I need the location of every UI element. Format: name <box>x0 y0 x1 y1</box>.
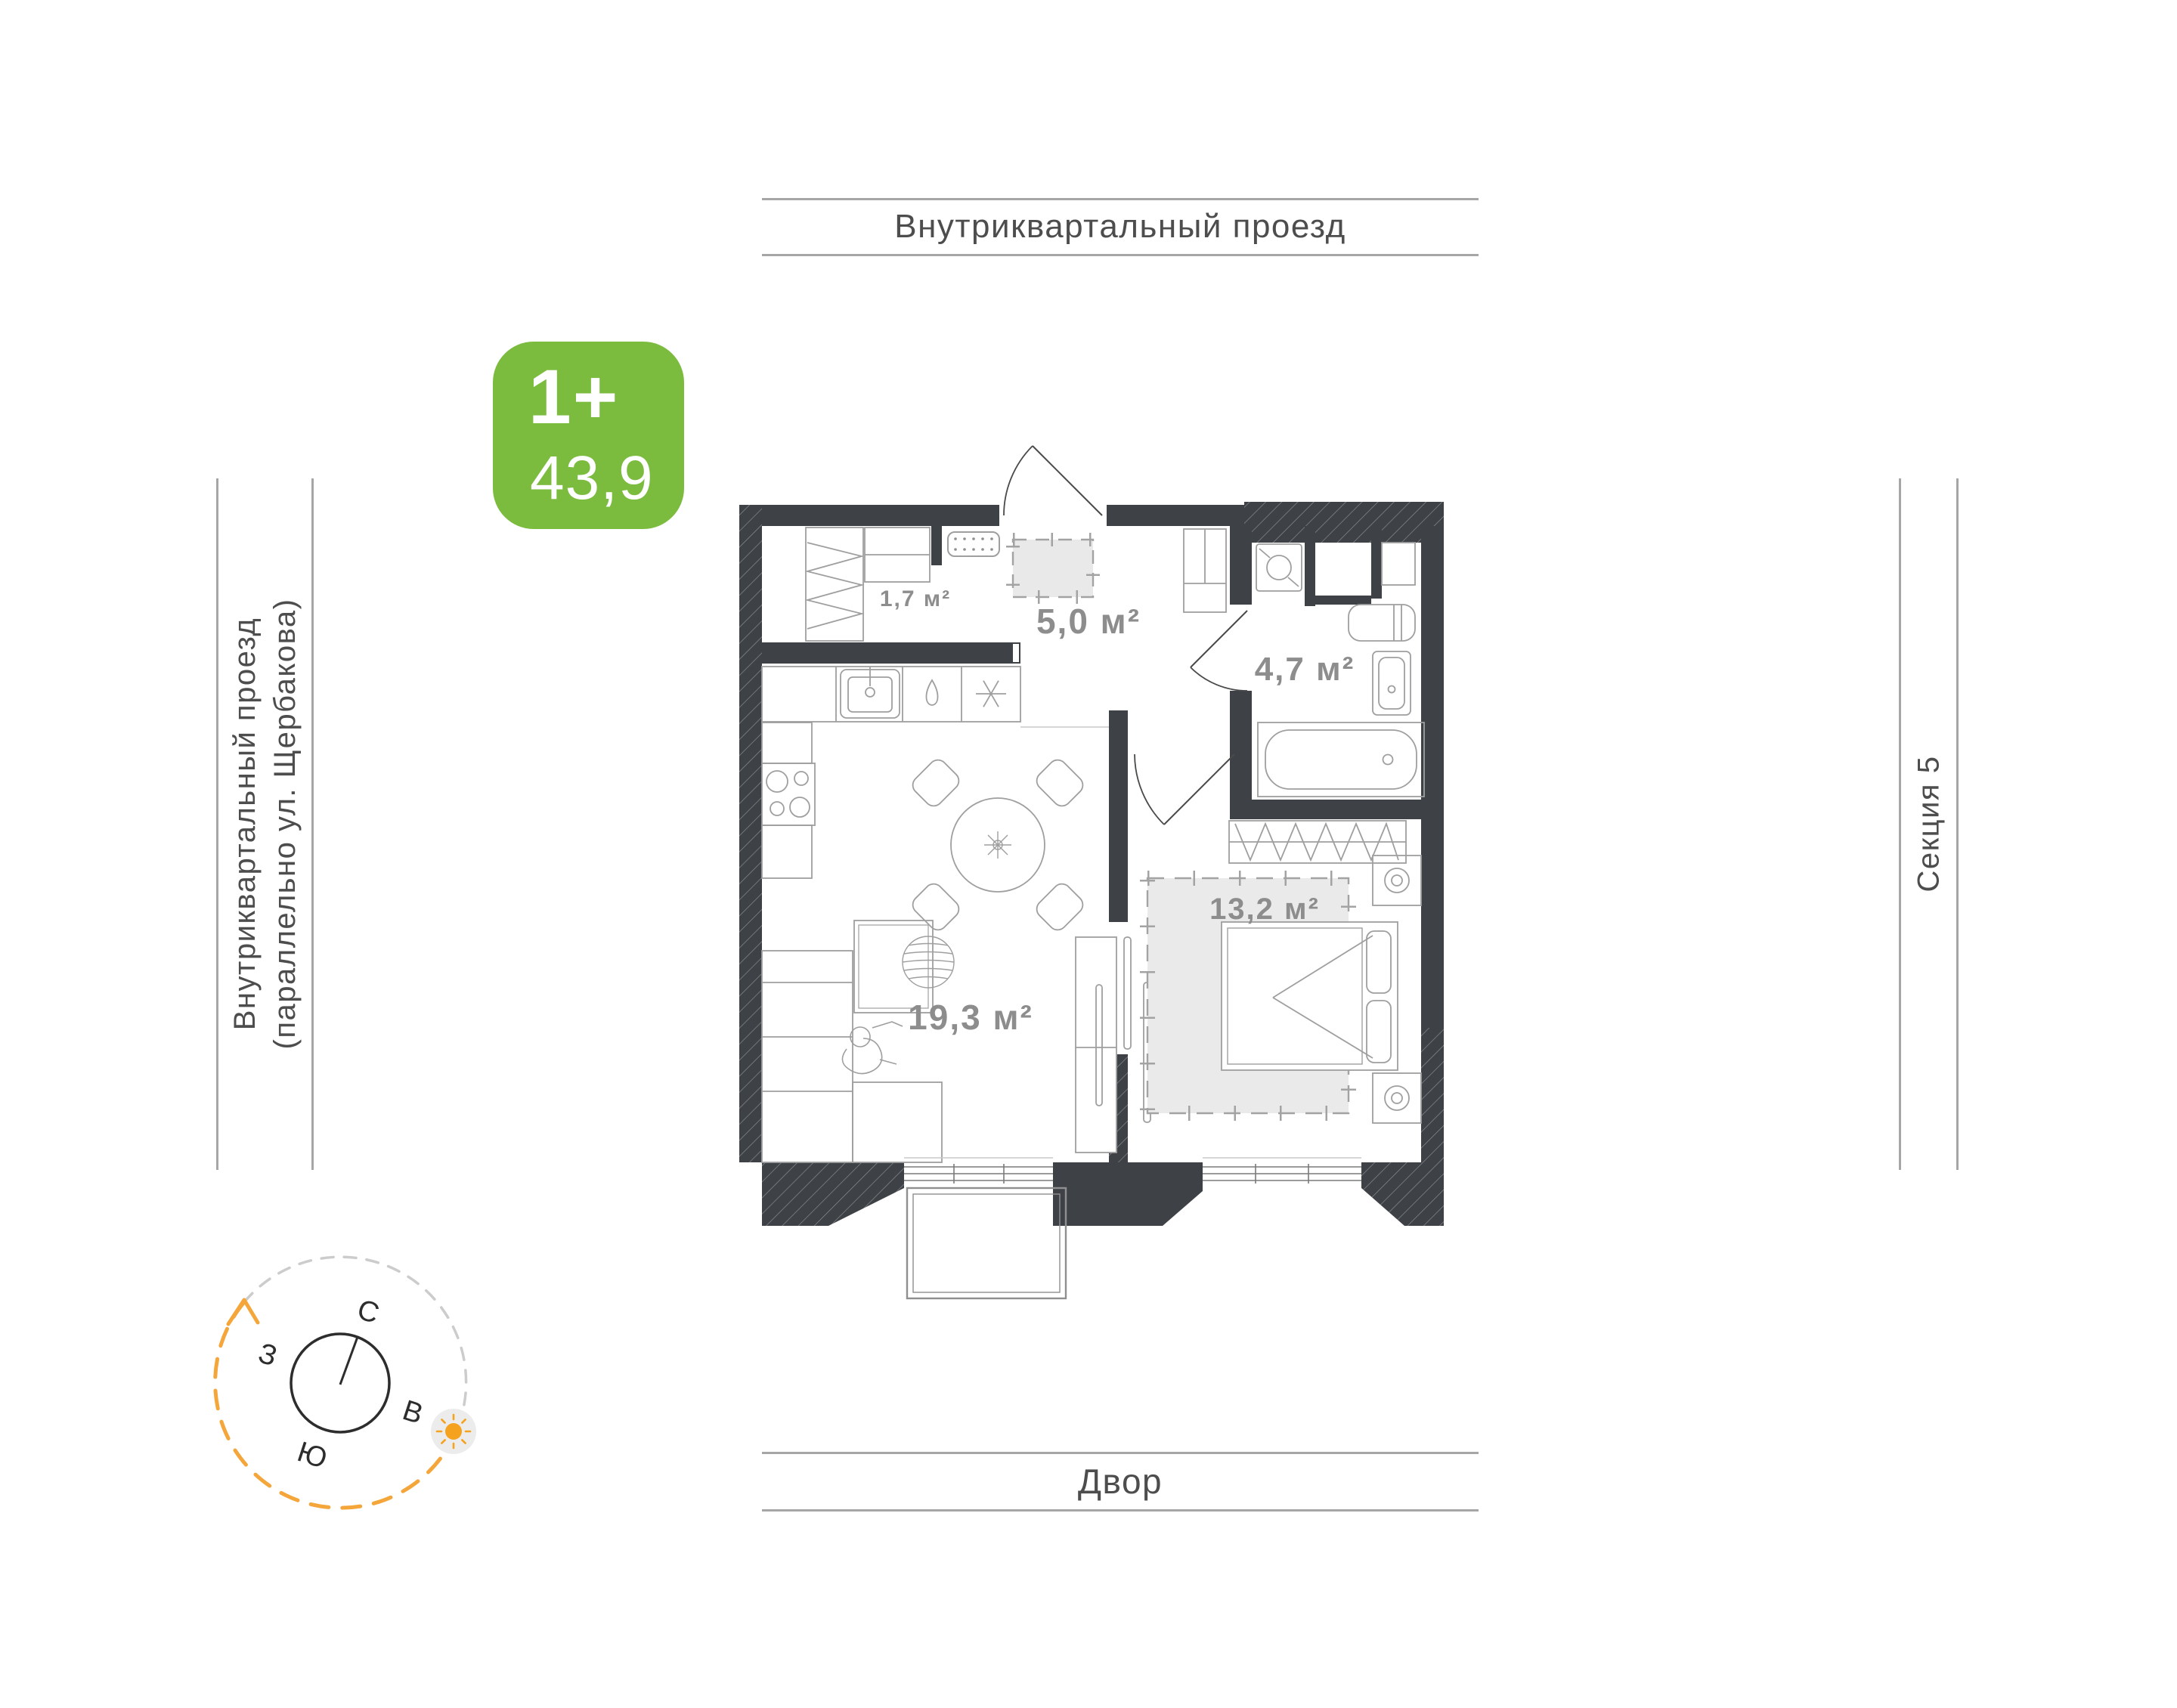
sofa <box>762 951 942 1162</box>
bathroom-niche <box>1382 543 1415 585</box>
dishwasher-drop-icon <box>926 680 937 705</box>
room-area-living: 19,3 м² <box>908 998 1033 1037</box>
person-figure <box>842 1022 903 1074</box>
entry-door-leaf <box>1033 446 1102 515</box>
sun-icon <box>431 1409 476 1454</box>
electrical-panel-icon <box>948 532 999 556</box>
dining-chair <box>909 757 963 810</box>
section-line-outer <box>1956 478 1959 1170</box>
left-road-label: Внутриквартальный проезд (параллельно ул… <box>225 599 305 1050</box>
badge-rooms-type: 1+ <box>528 358 619 435</box>
kitchen-counter <box>762 667 1020 722</box>
kitchen-sink-icon <box>841 667 900 718</box>
hatched-sill-left <box>762 1162 904 1226</box>
yard-line-upper <box>762 1452 1479 1454</box>
closet-wardrobe <box>806 528 930 641</box>
room-area-bedroom: 13,2 м² <box>1209 893 1320 926</box>
yard-line-lower <box>762 1509 1479 1512</box>
dining-chair <box>1033 880 1087 934</box>
hatched-sill-right <box>1361 1162 1444 1226</box>
counter-top <box>762 722 812 763</box>
fridge-snowflake-icon <box>976 681 1006 707</box>
top-road-line-upper <box>762 198 1479 200</box>
bathroom-sink-counter <box>1349 605 1415 641</box>
sofa-chaise <box>853 1082 942 1162</box>
hatched-wall-top-right <box>1244 502 1444 543</box>
living-furniture <box>762 722 1150 1162</box>
room-area-bathroom: 4,7 м² <box>1255 651 1355 688</box>
hatched-wall-left <box>739 505 762 1162</box>
counter-bottom <box>762 825 812 878</box>
sliding-door-leaf <box>1124 937 1131 1049</box>
room-area-hall: 5,0 м² <box>1036 602 1141 641</box>
left-road-line-outer <box>216 478 218 1170</box>
left-road-line-inner <box>311 478 314 1170</box>
compass-north: С <box>353 1294 382 1330</box>
table-flower-decor <box>984 831 1011 859</box>
washing-machine-icon <box>1256 544 1302 591</box>
compass-south: Ю <box>293 1436 330 1475</box>
hall-cabinet <box>1184 529 1226 612</box>
apartment-badge: 1+ 43,9 <box>493 342 684 529</box>
window-living <box>904 1164 1053 1184</box>
washbasin-icon <box>1373 651 1411 715</box>
room-area-closet: 1,7 м² <box>880 586 951 611</box>
section-line-inner <box>1899 478 1901 1170</box>
bedroom-door-swing <box>1135 754 1164 825</box>
cooktop-icon <box>762 763 815 825</box>
bedroom-furniture <box>1147 821 1421 1123</box>
floorplan-page: Внутриквартальный проезд Двор Внутриквар… <box>0 0 2177 1708</box>
entry-door-swing <box>1004 446 1033 515</box>
tv-console <box>1076 937 1116 1153</box>
floorplan-drawing: 1,7 м² 5,0 м² 4,7 м² 13,2 м² 19,3 м² <box>739 431 1450 1307</box>
bedroom-wardrobe <box>1229 821 1406 863</box>
balcony <box>907 1188 1066 1298</box>
compass-west: З <box>255 1337 281 1372</box>
top-road-line-lower <box>762 254 1479 256</box>
compass: С В Ю З <box>189 1232 491 1534</box>
bathtub-icon <box>1258 722 1424 797</box>
bathroom-door-leaf <box>1191 611 1247 667</box>
bedroom-door-leaf <box>1164 754 1234 825</box>
double-bed <box>1222 922 1398 1070</box>
nightstand-with-lamp <box>1373 1073 1421 1123</box>
dining-chair <box>909 880 963 934</box>
left-road-label-line1: Внутриквартальный проезд <box>225 599 265 1050</box>
dining-chair <box>1033 757 1087 810</box>
yard-label: Двор <box>1078 1461 1163 1502</box>
section-label: Секция 5 <box>1909 756 1949 893</box>
badge-total-area: 43,9 <box>530 447 654 509</box>
left-road-label-line2: (параллельно ул. Щербакова) <box>265 599 305 1050</box>
window-bedroom <box>1203 1164 1361 1184</box>
compass-east: В <box>398 1394 426 1431</box>
top-road-label: Внутриквартальный проезд <box>894 208 1346 246</box>
dining-table <box>909 757 1087 934</box>
hall-storage-zone <box>1013 540 1093 597</box>
sun-path-arrow-icon <box>228 1300 258 1324</box>
